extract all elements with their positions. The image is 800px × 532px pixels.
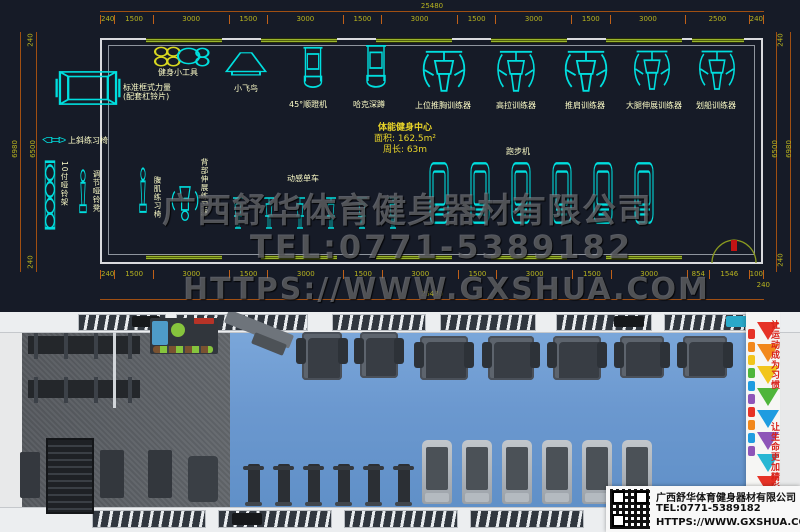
dim-left-lines [20, 32, 21, 272]
label-incline-bench: 上斜练习椅 [68, 136, 108, 145]
room-info: 体能健身中心 面积: 162.5m² 周长: 63m [330, 123, 480, 156]
watermark-text: 广西舒华体育健身器材有限公司 [162, 191, 652, 231]
bottom-window [344, 510, 458, 528]
dim-top-total-value: 25480 [421, 2, 443, 10]
dim-seg: 3000 [382, 15, 458, 24]
label-text: 腹肌练习椅 [153, 176, 162, 219]
tools-storage-3d [150, 318, 218, 354]
window-strip [491, 38, 567, 43]
lat-pulldown-icon [493, 44, 539, 96]
company-info-box: 广西舒华体育健身器材有限公司 TEL:0771-5389182 HTTPS://… [606, 486, 800, 532]
dim-right-outer: 6980 [785, 140, 793, 158]
bench-3d [100, 450, 124, 498]
ceiling-sign [614, 316, 644, 327]
banner-slogan-1: 让运动成为习惯 [769, 320, 779, 390]
machine-3d-leg-press [302, 332, 342, 380]
machine-3d-chest-press [420, 336, 468, 380]
qr-code [610, 489, 650, 529]
banner-squares-column [748, 326, 755, 459]
window-strip [146, 255, 222, 260]
skylight-window [332, 314, 426, 331]
label-text: 调节哑铃凳 [92, 170, 101, 213]
dim-seg: 240 [100, 270, 115, 279]
rowing-machine-icon [695, 44, 739, 94]
dim-seg: 240 [100, 15, 115, 24]
storage-bin-blue [152, 321, 168, 345]
spin-bike-3d [248, 464, 260, 504]
skylight-window [440, 314, 536, 331]
banner-slogan-text: 让生命更加精彩 [769, 422, 779, 492]
window-strip [606, 38, 682, 43]
spin-bike-3d [398, 464, 410, 504]
dim-top-total: 25480 [100, 2, 764, 12]
treadmill-3d [542, 440, 572, 504]
company-name: 广西舒华体育健身器材有限公司 [656, 489, 796, 504]
dim-seg: 1500 [344, 15, 382, 24]
bench-3d [148, 450, 172, 498]
label-rowing-machine: 划船训练器 [696, 101, 736, 110]
label-treadmills: 跑步机 [506, 147, 530, 156]
window-strip [261, 38, 337, 43]
dim-value: 6980 [11, 140, 19, 158]
dim-seg: 1500 [115, 15, 153, 24]
dim-right-top: 240 [777, 33, 785, 46]
label-leg-extension: 大腿伸展训练器 [626, 101, 682, 110]
label-text: 45°顺蹬机 [289, 100, 327, 109]
dim-bottom-corner-value: 240 [757, 281, 770, 289]
room-area: 面积: 162.5m² [330, 134, 480, 145]
back-extension-3d [188, 456, 218, 502]
power-rack-3d [28, 336, 140, 354]
label-hack-squat: 哈克深蹲 [353, 100, 385, 109]
storage-balls-row [153, 346, 213, 353]
treadmill-3d [422, 440, 452, 504]
dim-seg: 1546 [710, 270, 750, 279]
label-fly-bird: 小飞鸟 [234, 84, 258, 93]
dim-right-inner: 6500 [771, 140, 779, 158]
floor-sign [232, 513, 262, 525]
label-incline-chest-press: 上位推胸训练器 [415, 101, 471, 110]
watermark-text: HTTPS://WWW.GXSHUA.COM [183, 272, 710, 307]
render-3d-topview: 让运动成为习惯 让生命更加精彩 广西舒华体育健身器材有限公司 TEL:0771-… [0, 312, 800, 532]
leg-press-45-icon [294, 44, 332, 94]
room-perimeter: 周长: 63m [330, 145, 480, 156]
barbell-3d [113, 332, 116, 408]
dumbbell-rack-icon [38, 158, 62, 232]
dim-right-bottom: 240 [777, 253, 785, 266]
machine-3d-leg-extension [620, 336, 664, 378]
treadmill-3d [462, 440, 492, 504]
storage-item-red [194, 318, 214, 324]
label-adjustable-bench: 调节哑铃凳 [92, 170, 100, 213]
dim-seg: 2500 [686, 15, 749, 24]
ab-chair-icon [132, 164, 154, 222]
machine-3d-rowing [683, 336, 727, 378]
hack-squat-icon [356, 42, 396, 94]
dim-seg: 100 [750, 270, 764, 279]
dim-value: 6500 [771, 140, 779, 158]
label-ab-chair: 腹肌练习椅 [153, 176, 161, 219]
label-shoulder-press: 推肩训练器 [565, 101, 605, 110]
dim-seg: 1500 [458, 15, 496, 24]
label-power-rack: 标准框式力量 (配套杠铃片) [123, 83, 171, 101]
label-text: 10付哑铃架 [60, 161, 69, 207]
power-rack-icon [55, 65, 121, 111]
label-text: 标准框式力量 [123, 83, 171, 92]
watermark-company: 广西舒华体育健身器材有限公司 [162, 183, 652, 232]
cad-floor-plan: 25480 240 1500 3000 1500 3000 1500 3000 … [0, 0, 800, 312]
label-text: 大腿伸展训练器 [626, 101, 682, 110]
dumbbell-rack-3d [46, 438, 94, 514]
label-dumbbell-rack: 10付哑铃架 [60, 161, 68, 207]
spin-bike-3d [338, 464, 350, 504]
label-small-tools: 健身小工具 [158, 68, 198, 77]
dim-value: 240 [27, 33, 35, 46]
dim-seg: 3000 [154, 15, 230, 24]
dim-top-segments: 240 1500 3000 1500 3000 1500 3000 1500 3… [100, 13, 764, 24]
door-handle-mark [731, 240, 737, 251]
label-text: 小飞鸟 [234, 84, 258, 93]
spin-bike-3d [368, 464, 380, 504]
spin-bike-3d [308, 464, 320, 504]
label-text: 高拉训练器 [496, 101, 536, 110]
treadmill-3d [502, 440, 532, 504]
window-strip [692, 38, 744, 43]
leg-extension-icon [630, 44, 674, 94]
dim-value: 240 [777, 253, 785, 266]
entrance-door [710, 238, 758, 264]
dim-seg: 240 [750, 15, 764, 24]
dim-seg: 3000 [611, 15, 687, 24]
incline-bench-icon [40, 130, 68, 150]
dim-left-outer: 6980 [11, 140, 19, 158]
label-text: 划船训练器 [696, 101, 736, 110]
storage-ball-green [171, 323, 185, 337]
incline-chest-press-icon [418, 44, 470, 96]
dim-left-inner: 6500 [29, 140, 37, 158]
watermark-url: HTTPS://WWW.GXSHUA.COM [183, 272, 710, 307]
dim-seg: 1500 [572, 15, 610, 24]
bottom-window [92, 510, 206, 528]
label-text: (配套杠铃片) [123, 92, 171, 101]
dim-bottom-corner: 240 [757, 281, 770, 289]
company-tel-text: TEL:0771-5389182 [656, 503, 761, 514]
dim-seg: 3000 [268, 15, 344, 24]
shoulder-press-icon [560, 44, 612, 96]
label-spin-bikes: 动感单车 [287, 174, 319, 183]
label-text: 动感单车 [287, 174, 319, 183]
machine-3d-lat-pulldown [488, 336, 534, 380]
label-leg-press-45: 45°顺蹬机 [289, 100, 327, 109]
label-text: 哈克深蹲 [353, 100, 385, 109]
label-lat-pulldown: 高拉训练器 [496, 101, 536, 110]
watermark-tel: TEL:0771-5389182 [250, 228, 633, 266]
banner-slogan-2: 让生命更加精彩 [769, 422, 779, 492]
company-url: HTTPS://WWW.GXSHUA.COM [656, 517, 800, 528]
banner-slogan-text: 让运动成为习惯 [769, 320, 779, 390]
power-rack-3d [28, 380, 140, 398]
label-text: 上斜练习椅 [68, 136, 108, 145]
company-url-text: HTTPS://WWW.GXSHUA.COM [656, 517, 800, 528]
dim-value: 240 [777, 33, 785, 46]
dim-left-bottom: 240 [27, 255, 35, 268]
dim-left-top: 240 [27, 33, 35, 46]
company-tel: TEL:0771-5389182 [656, 503, 761, 514]
small-tools-icon [152, 43, 210, 69]
label-text: 健身小工具 [158, 68, 198, 77]
dim-seg: 1500 [115, 270, 153, 279]
machine-3d-shoulder-press [553, 336, 601, 380]
adjustable-bench-icon [72, 166, 94, 222]
incline-bench-3d [20, 452, 40, 498]
label-text: 推肩训练器 [565, 101, 605, 110]
fly-bird-icon [218, 46, 274, 80]
dim-value: 6500 [29, 140, 37, 158]
bottom-window [470, 510, 584, 528]
dim-seg: 3000 [496, 15, 572, 24]
label-text: 上位推胸训练器 [415, 101, 471, 110]
watermark-text: TEL:0771-5389182 [250, 228, 633, 266]
dim-seg: 1500 [230, 15, 268, 24]
room-name: 体能健身中心 [330, 123, 480, 134]
machine-3d-hack-squat [360, 332, 398, 378]
dim-value: 6980 [785, 140, 793, 158]
label-text: 跑步机 [506, 147, 530, 156]
spin-bike-3d [278, 464, 290, 504]
gym-design-sheet: 25480 240 1500 3000 1500 3000 1500 3000 … [0, 0, 800, 532]
dim-value: 240 [27, 255, 35, 268]
ceiling-sign [726, 316, 748, 327]
